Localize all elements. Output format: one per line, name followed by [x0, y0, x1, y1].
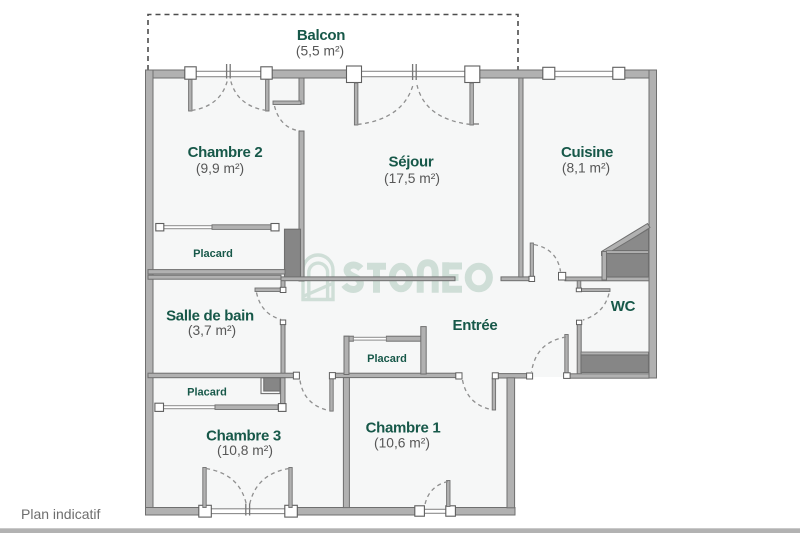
svg-text:(9,9 m²): (9,9 m²)	[196, 161, 244, 176]
svg-text:Plan indicatif: Plan indicatif	[21, 506, 100, 522]
svg-text:(10,8 m²): (10,8 m²)	[217, 443, 273, 458]
svg-text:Placard: Placard	[367, 353, 407, 365]
svg-text:Cuisine: Cuisine	[561, 144, 613, 161]
svg-text:(10,6 m²): (10,6 m²)	[374, 436, 430, 451]
svg-text:Placard: Placard	[193, 248, 233, 260]
svg-text:WC: WC	[611, 298, 636, 315]
svg-text:Chambre 3: Chambre 3	[206, 428, 281, 445]
svg-text:Séjour: Séjour	[389, 154, 434, 171]
svg-text:(8,1 m²): (8,1 m²)	[562, 161, 610, 176]
svg-text:Chambre 1: Chambre 1	[366, 420, 441, 437]
svg-text:Placard: Placard	[187, 387, 227, 399]
svg-text:Balcon: Balcon	[297, 27, 345, 44]
svg-text:(17,5 m²): (17,5 m²)	[384, 171, 440, 186]
svg-text:Entrée: Entrée	[453, 317, 498, 334]
svg-text:(5,5 m²): (5,5 m²)	[296, 44, 344, 59]
svg-text:Salle de bain: Salle de bain	[166, 308, 254, 325]
svg-text:Chambre 2: Chambre 2	[188, 144, 263, 161]
svg-text:(3,7 m²): (3,7 m²)	[188, 323, 236, 338]
